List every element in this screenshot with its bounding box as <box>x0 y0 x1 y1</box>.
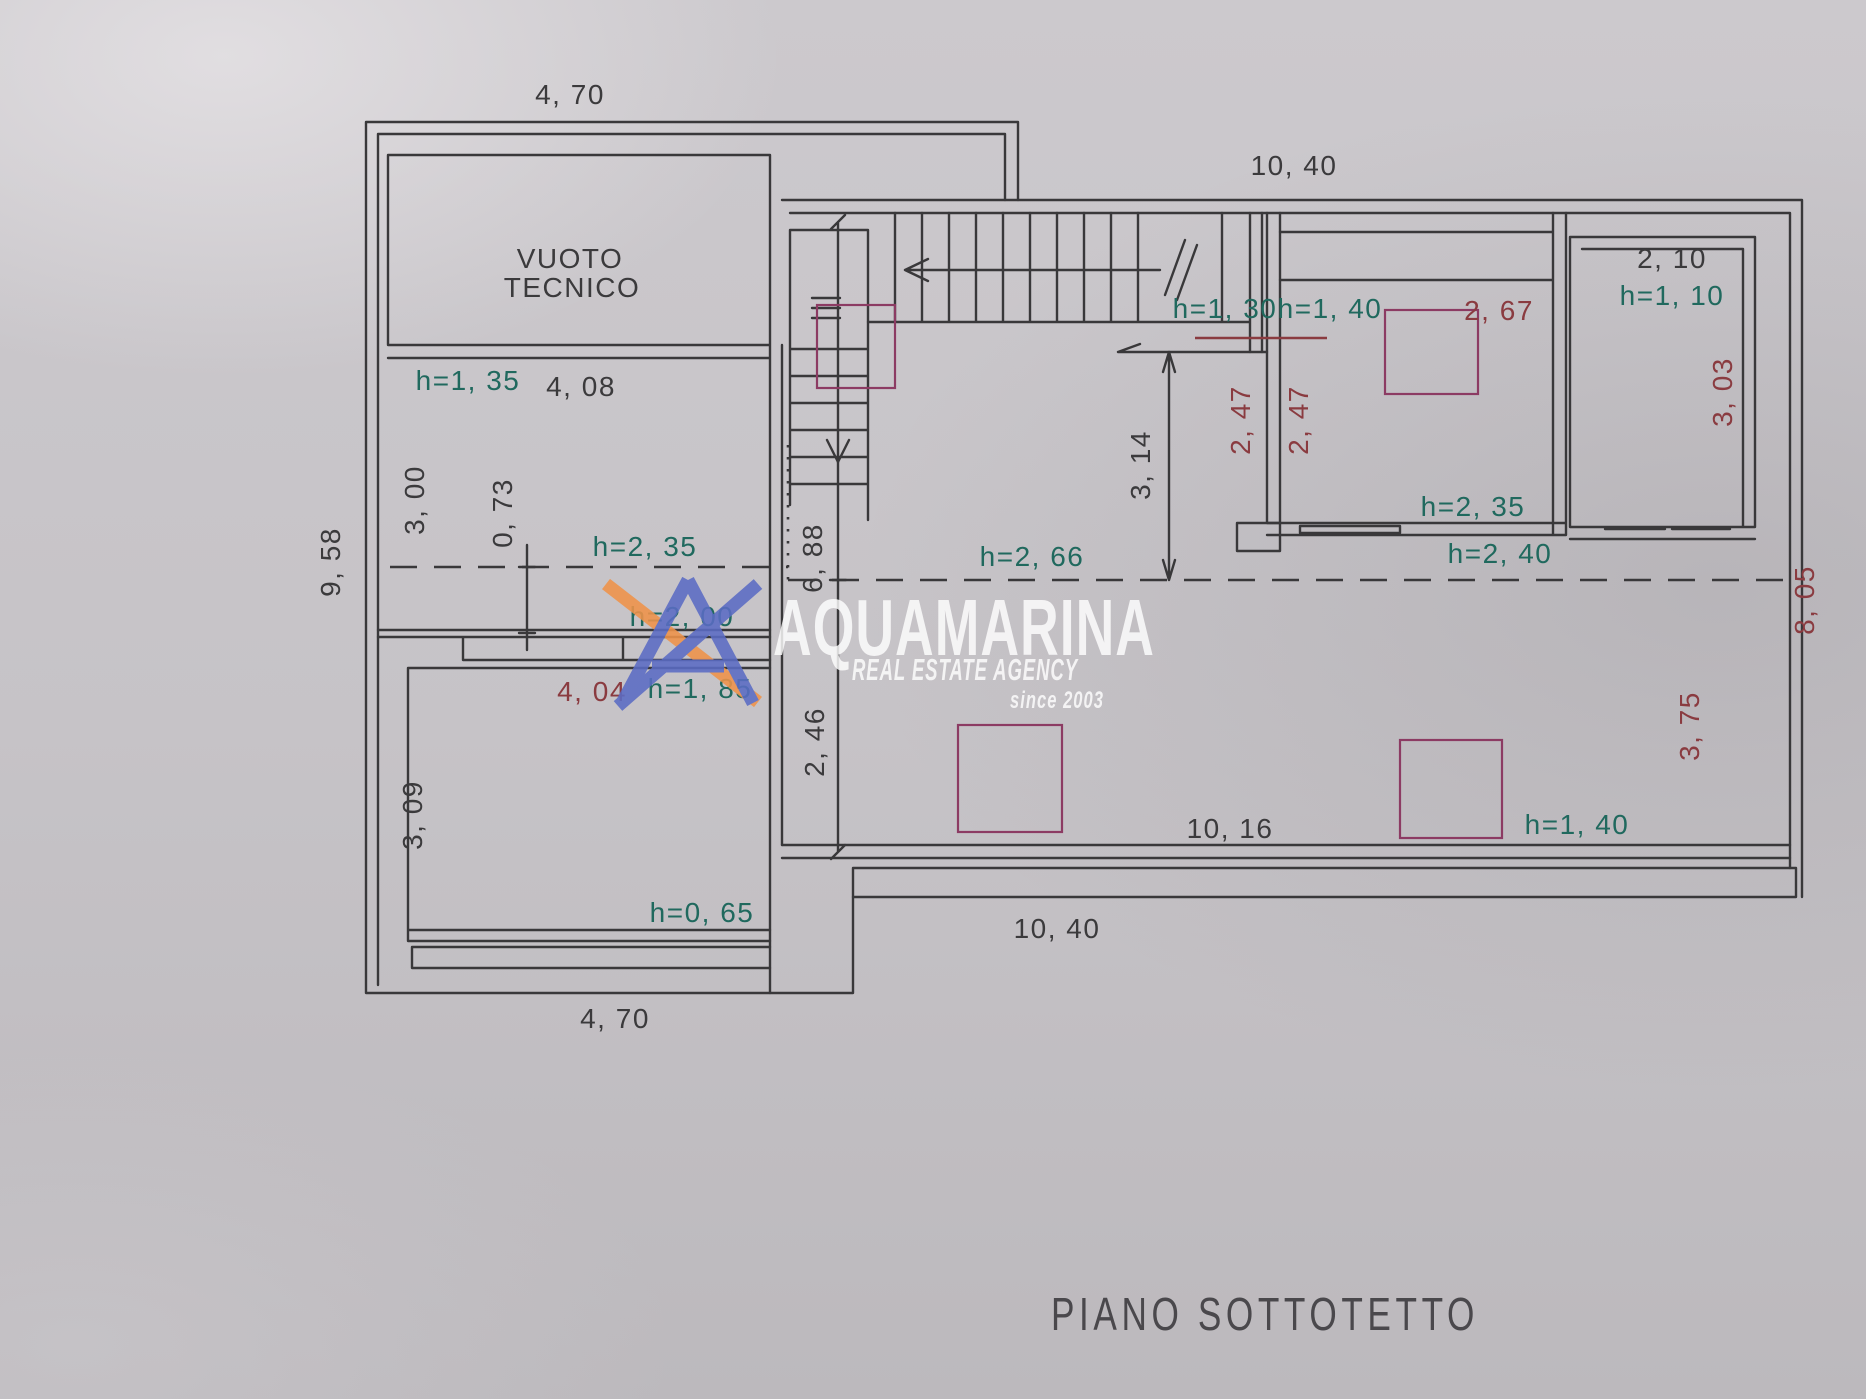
floorplan-photo: 4, 7010, 40VUOTOTECNICOh=1, 354, 083, 00… <box>0 0 1866 1399</box>
dim-314: 3, 14 <box>1125 430 1156 500</box>
skylight-lower-right <box>1400 740 1502 838</box>
dim-210: 2, 10 <box>1637 243 1707 274</box>
dim-300: 3, 00 <box>399 465 430 535</box>
h-140-bottom: h=1, 40 <box>1525 809 1630 840</box>
h-235-left: h=2, 35 <box>593 531 698 562</box>
dim-247-right: 2, 47 <box>1283 385 1314 455</box>
dim-303: 3, 03 <box>1707 357 1738 427</box>
h-266: h=2, 66 <box>980 541 1085 572</box>
skylights <box>817 305 1502 838</box>
staircase <box>790 213 1262 520</box>
h-140-top: h=1, 40 <box>1278 293 1383 324</box>
dim-247-left: 2, 47 <box>1225 385 1256 455</box>
room-vuoto-line2: TECNICO <box>504 272 641 303</box>
watermark-tagline: REAL ESTATE AGENCY <box>852 652 1079 687</box>
dim-top-right-width: 10, 40 <box>1251 150 1338 181</box>
dim-246: 2, 46 <box>799 707 830 777</box>
skylight-lower-left <box>958 725 1062 832</box>
h-110: h=1, 10 <box>1620 280 1725 311</box>
floorplan-drawing: 4, 7010, 40VUOTOTECNICOh=1, 354, 083, 00… <box>0 0 1866 1399</box>
room-vuoto-line1: VUOTO <box>517 243 624 274</box>
dim-408: 4, 08 <box>546 371 616 402</box>
watermark-since: since 2003 <box>1010 687 1104 714</box>
h-065: h=0, 65 <box>650 897 755 928</box>
dim-1016: 10, 16 <box>1187 813 1274 844</box>
h-135: h=1, 35 <box>416 365 521 396</box>
floor-title: PIANO SOTTOTETTO <box>1051 1288 1479 1340</box>
dim-bottom-right-width: 10, 40 <box>1014 913 1101 944</box>
h-235-right: h=2, 35 <box>1421 491 1526 522</box>
dim-309: 3, 09 <box>397 780 428 850</box>
dim-267: 2, 67 <box>1464 295 1534 326</box>
dim-375: 3, 75 <box>1674 691 1705 761</box>
dim-805: 8, 05 <box>1789 565 1820 635</box>
h-130: h=1, 30 <box>1173 293 1278 324</box>
h-240: h=2, 40 <box>1448 538 1553 569</box>
dim-top-left-width: 4, 70 <box>535 79 605 110</box>
dim-958: 9, 58 <box>315 527 346 597</box>
dim-bottom-left-width: 4, 70 <box>580 1003 650 1034</box>
dim-073: 0, 73 <box>487 478 518 548</box>
dimension-labels: 4, 7010, 40VUOTOTECNICOh=1, 354, 083, 00… <box>315 79 1820 1034</box>
